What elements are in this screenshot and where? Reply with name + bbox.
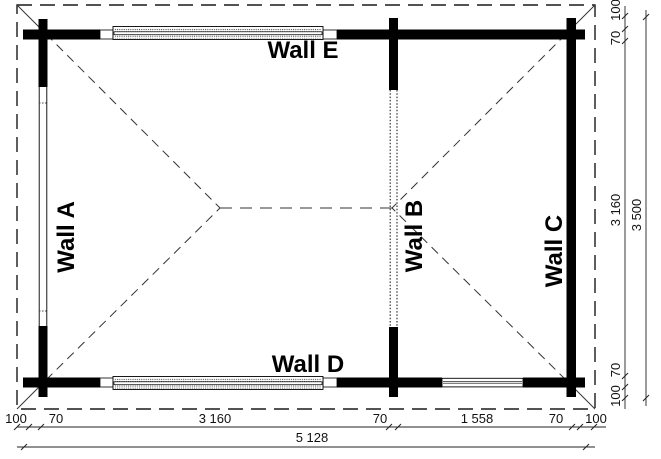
wall-d-label: Wall D — [272, 351, 344, 378]
dim-right-total-col: 3 500 — [629, 10, 649, 406]
dim-bottom-total-row: 5 128 — [17, 430, 595, 450]
window-wall-d-left — [113, 377, 323, 390]
wall-e-label: Wall E — [267, 37, 338, 64]
dim-right-overhang-top: 100 — [608, 0, 623, 21]
wall-d-left-segment — [23, 378, 100, 388]
dim-bottom-span-right: 1 558 — [461, 411, 494, 426]
dim-right-overhang-bottom: 100 — [608, 385, 623, 407]
wall-b-top-post — [389, 18, 398, 90]
floor-plan-canvas: Wall E Wall D Wall A Wall B Wall C 100 7… — [0, 0, 661, 459]
wall-e-left-segment — [23, 30, 100, 40]
dim-right-span: 3 160 — [608, 194, 623, 227]
dim-bottom-row: 100 70 3 160 70 1 558 70 100 — [5, 411, 607, 430]
dim-bottom-span-left: 3 160 — [199, 411, 232, 426]
dim-bottom-wall-b: 70 — [373, 411, 387, 426]
dim-right-total: 3 500 — [629, 199, 644, 232]
wall-a-bottom-post — [39, 326, 48, 397]
dim-right-wall-e: 70 — [608, 31, 623, 45]
wall-b-label: Wall B — [401, 200, 428, 272]
dim-bottom-wall-c: 70 — [549, 411, 563, 426]
wall-e-right-segment — [337, 30, 585, 40]
dim-right-wall-d: 70 — [608, 363, 623, 377]
dim-bottom-overhang-left: 100 — [5, 411, 27, 426]
wall-c-label: Wall C — [541, 215, 568, 287]
dim-bottom-total: 5 128 — [296, 430, 329, 445]
hip-line-top-left — [46, 34, 220, 208]
wall-c-segment — [567, 18, 577, 397]
wall-a-open-section — [39, 87, 47, 326]
roof-eaves-outline — [17, 5, 595, 409]
dim-right-col: 100 70 3 160 70 100 — [608, 0, 628, 409]
dim-bottom-wall-a: 70 — [49, 411, 63, 426]
hip-line-top-right — [392, 34, 566, 208]
wall-a-top-post — [39, 19, 48, 87]
floor-plan-page: Wall E Wall D Wall A Wall B Wall C 100 7… — [0, 0, 661, 459]
wall-d-gap-left — [100, 378, 113, 387]
dim-bottom-overhang-right: 100 — [585, 411, 607, 426]
wall-e-gap-left — [100, 30, 113, 39]
window-wall-d-right — [442, 378, 523, 387]
wall-b-bottom-post — [389, 327, 398, 397]
roof-lines — [17, 5, 595, 409]
wall-d-gap-right — [323, 378, 337, 387]
wall-a-label: Wall A — [53, 201, 80, 273]
